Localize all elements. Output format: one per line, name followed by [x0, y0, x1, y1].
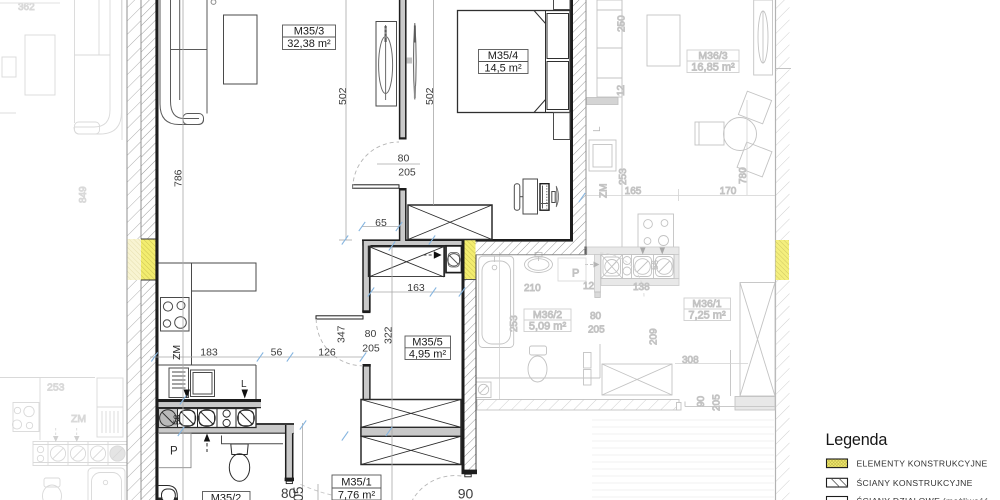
svg-text:253: 253 — [47, 382, 65, 394]
svg-text:322: 322 — [383, 326, 395, 344]
svg-text:138: 138 — [633, 282, 650, 293]
svg-text:210: 210 — [524, 283, 541, 294]
svg-text:209: 209 — [649, 328, 660, 345]
svg-text:849: 849 — [78, 186, 89, 203]
svg-text:65: 65 — [375, 217, 387, 229]
svg-text:ZM: ZM — [171, 345, 183, 360]
svg-text:165: 165 — [625, 186, 642, 197]
svg-text:56: 56 — [271, 347, 283, 359]
svg-text:5,09 m²: 5,09 m² — [529, 320, 567, 332]
svg-text:80: 80 — [365, 328, 377, 340]
svg-text:M35/1: M35/1 — [341, 477, 372, 489]
svg-text:M35/3: M35/3 — [294, 26, 325, 38]
svg-text:M35/4: M35/4 — [488, 50, 519, 62]
svg-text:90: 90 — [696, 395, 707, 407]
svg-text:L: L — [592, 126, 603, 132]
svg-text:M35/2: M35/2 — [211, 493, 242, 500]
svg-text:56: 56 — [172, 414, 183, 425]
svg-text:M36/3: M36/3 — [698, 50, 727, 62]
svg-text:M36/1: M36/1 — [692, 298, 721, 310]
svg-text:502: 502 — [424, 87, 436, 105]
svg-text:16,85 m²: 16,85 m² — [691, 61, 735, 73]
svg-text:250: 250 — [617, 15, 628, 32]
svg-text:362: 362 — [18, 2, 35, 13]
svg-text:253: 253 — [618, 168, 629, 185]
svg-text:ELEMENTY KONSTRUKCYJNE: ELEMENTY KONSTRUKCYJNE — [857, 459, 988, 469]
svg-text:7,76 m²: 7,76 m² — [338, 490, 376, 500]
svg-text:780: 780 — [738, 167, 749, 184]
svg-text:205: 205 — [291, 486, 306, 500]
svg-text:253: 253 — [509, 315, 520, 332]
svg-text:205: 205 — [712, 394, 723, 411]
svg-text:347: 347 — [336, 325, 348, 343]
svg-text:80: 80 — [398, 153, 410, 165]
svg-text:786: 786 — [173, 169, 185, 187]
svg-text:170: 170 — [720, 186, 737, 197]
svg-text:P: P — [572, 268, 579, 280]
svg-text:163: 163 — [407, 282, 425, 294]
svg-text:308: 308 — [682, 355, 699, 366]
svg-text:126: 126 — [318, 347, 336, 359]
svg-text:ŚCIANY DZIAŁOWE (możliwość: ŚCIANY DZIAŁOWE (możliwość — [857, 495, 989, 500]
svg-text:205: 205 — [588, 325, 605, 336]
svg-text:ŚCIANY KONSTRUKCYJNE: ŚCIANY KONSTRUKCYJNE — [857, 477, 973, 488]
svg-text:205: 205 — [362, 343, 380, 355]
svg-text:M35/5: M35/5 — [412, 336, 443, 348]
svg-text:M36/2: M36/2 — [533, 309, 562, 321]
svg-text:56: 56 — [650, 260, 660, 270]
svg-text:80: 80 — [590, 311, 602, 322]
svg-text:183: 183 — [200, 347, 218, 359]
svg-text:12: 12 — [616, 84, 627, 96]
svg-text:4,95 m²: 4,95 m² — [409, 348, 447, 360]
svg-text:P: P — [170, 446, 178, 458]
svg-text:90: 90 — [458, 486, 474, 500]
svg-text:14,5 m²: 14,5 m² — [484, 63, 522, 75]
svg-text:32,38 m²: 32,38 m² — [287, 38, 331, 50]
svg-text:7,25 m²: 7,25 m² — [688, 309, 726, 321]
svg-text:L: L — [241, 379, 247, 390]
svg-text:Legenda: Legenda — [826, 431, 888, 449]
svg-text:ZM: ZM — [599, 184, 610, 198]
svg-text:502: 502 — [337, 87, 349, 105]
svg-text:205: 205 — [398, 167, 416, 179]
svg-text:ZM: ZM — [71, 413, 86, 425]
svg-text:12: 12 — [583, 281, 595, 292]
